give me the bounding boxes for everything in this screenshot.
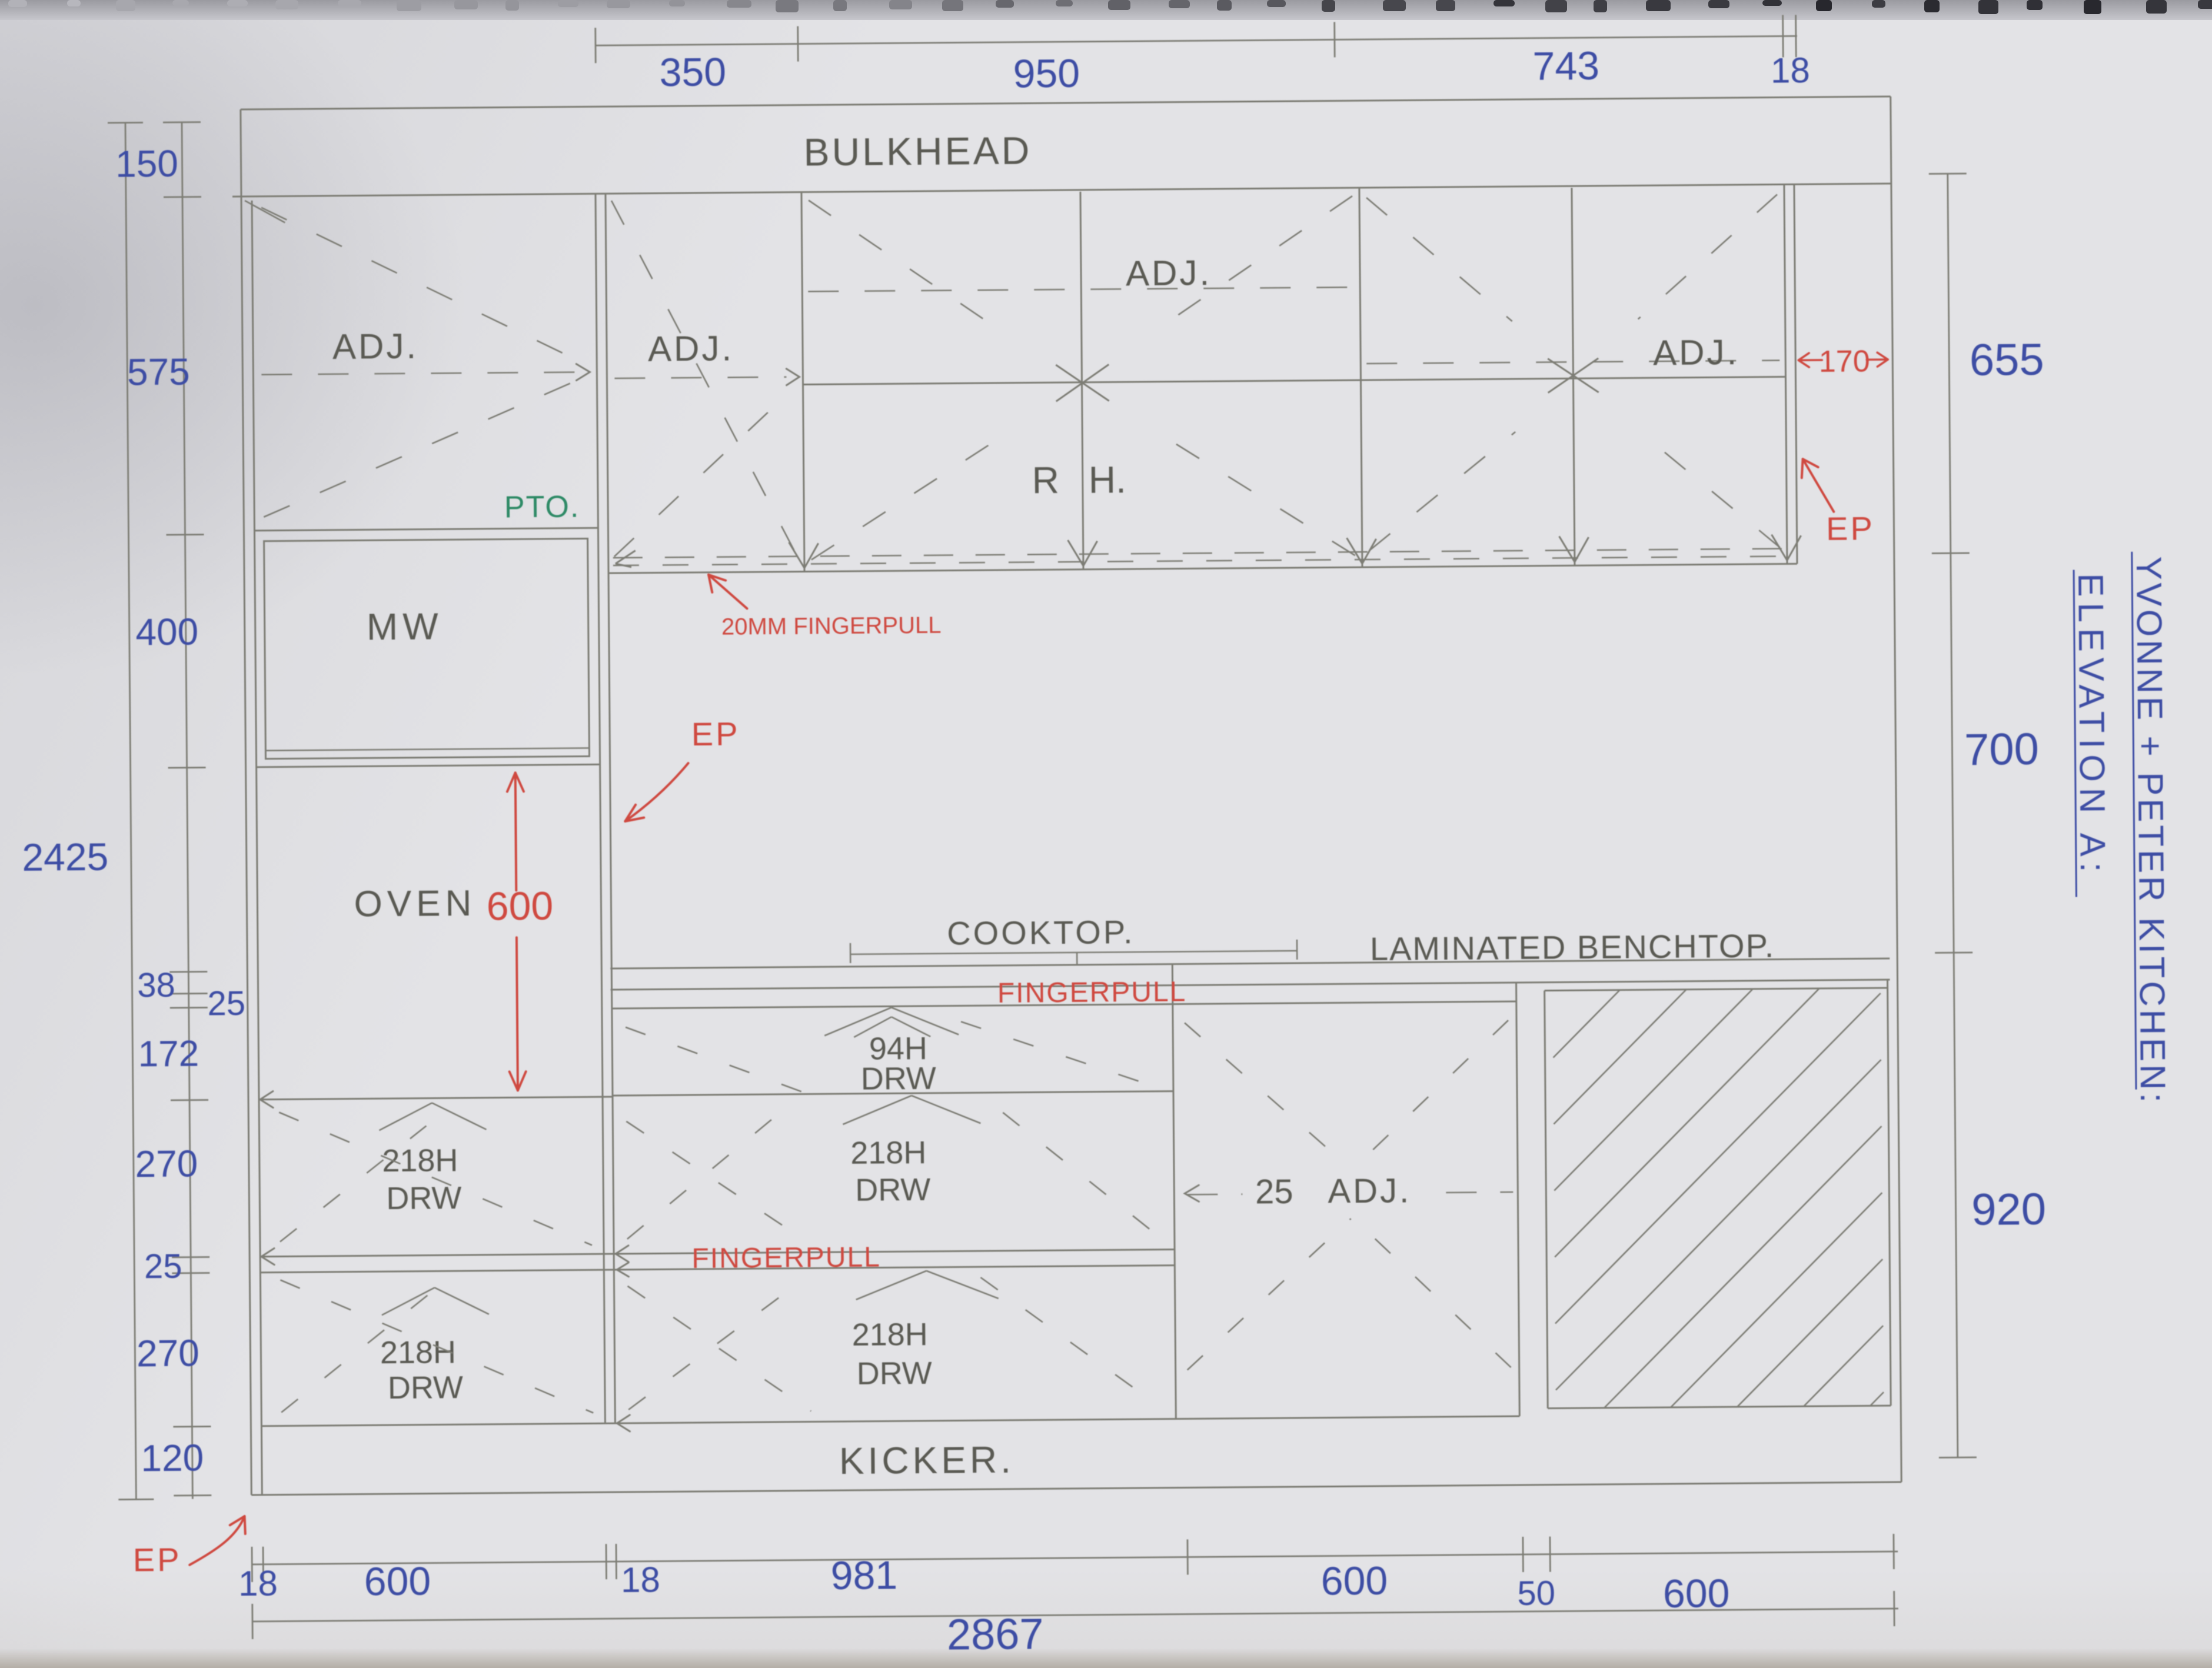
svg-text:172: 172 [138, 1034, 199, 1075]
svg-text:25: 25 [1255, 1173, 1293, 1211]
svg-text:218H: 218H [380, 1334, 457, 1370]
svg-text:MW: MW [367, 605, 443, 648]
svg-text:218H: 218H [850, 1135, 927, 1171]
svg-text:25: 25 [144, 1247, 182, 1286]
svg-text:600: 600 [486, 884, 553, 929]
svg-text:ELEVATION A:: ELEVATION A: [2071, 573, 2113, 878]
svg-text:LAMINATED BENCHTOP.: LAMINATED BENCHTOP. [1370, 927, 1775, 967]
svg-text:50: 50 [1517, 1574, 1555, 1613]
svg-text:EP: EP [691, 715, 740, 753]
svg-text:18: 18 [621, 1560, 660, 1600]
svg-text:OVEN: OVEN [354, 883, 476, 925]
svg-text:ADJ.: ADJ. [1126, 253, 1212, 293]
svg-text:400: 400 [135, 611, 198, 654]
svg-text:KICKER.: KICKER. [839, 1439, 1015, 1482]
svg-text:2425: 2425 [22, 835, 108, 879]
svg-text:270: 270 [137, 1332, 199, 1375]
svg-text:DRW: DRW [388, 1370, 463, 1406]
svg-text:COOKTOP.: COOKTOP. [947, 913, 1135, 952]
svg-text:PTO.: PTO. [504, 490, 580, 525]
svg-text:575: 575 [127, 351, 190, 394]
svg-text:DRW: DRW [855, 1172, 930, 1208]
svg-text:FINGERPULL: FINGERPULL [997, 976, 1187, 1009]
svg-text:R: R [1032, 459, 1059, 501]
svg-text:EP: EP [1826, 510, 1875, 547]
svg-text:DRW: DRW [856, 1356, 932, 1391]
svg-text:ADJ.: ADJ. [1653, 332, 1739, 372]
svg-text:170: 170 [1819, 344, 1870, 379]
svg-text:743: 743 [1532, 44, 1599, 89]
svg-text:270: 270 [135, 1143, 198, 1186]
svg-text:920: 920 [1971, 1184, 2046, 1235]
svg-text:150: 150 [115, 142, 178, 185]
svg-text:600: 600 [364, 1559, 431, 1604]
svg-text:DRW: DRW [861, 1061, 936, 1097]
svg-text:950: 950 [1013, 51, 1080, 96]
svg-text:120: 120 [141, 1437, 204, 1480]
svg-text:700: 700 [1964, 724, 2039, 775]
svg-text:981: 981 [830, 1553, 897, 1598]
svg-text:20MM FINGERPULL: 20MM FINGERPULL [721, 612, 942, 640]
svg-text:38: 38 [137, 966, 175, 1005]
svg-text:H.: H. [1089, 458, 1127, 501]
svg-text:BULKHEAD: BULKHEAD [803, 128, 1032, 174]
svg-text:ADJ.: ADJ. [648, 328, 734, 368]
svg-text:18: 18 [238, 1564, 278, 1604]
svg-text:655: 655 [1970, 335, 2044, 385]
svg-text:25: 25 [207, 984, 245, 1023]
svg-text:ADJ.: ADJ. [1328, 1171, 1411, 1210]
svg-text:350: 350 [659, 50, 726, 95]
svg-text:18: 18 [1771, 51, 1810, 91]
svg-text:EP: EP [133, 1541, 182, 1579]
svg-text:218H: 218H [851, 1317, 928, 1353]
svg-text:FINGERPULL: FINGERPULL [691, 1242, 881, 1275]
svg-text:ADJ.: ADJ. [332, 327, 419, 367]
svg-text:600: 600 [1320, 1559, 1388, 1604]
